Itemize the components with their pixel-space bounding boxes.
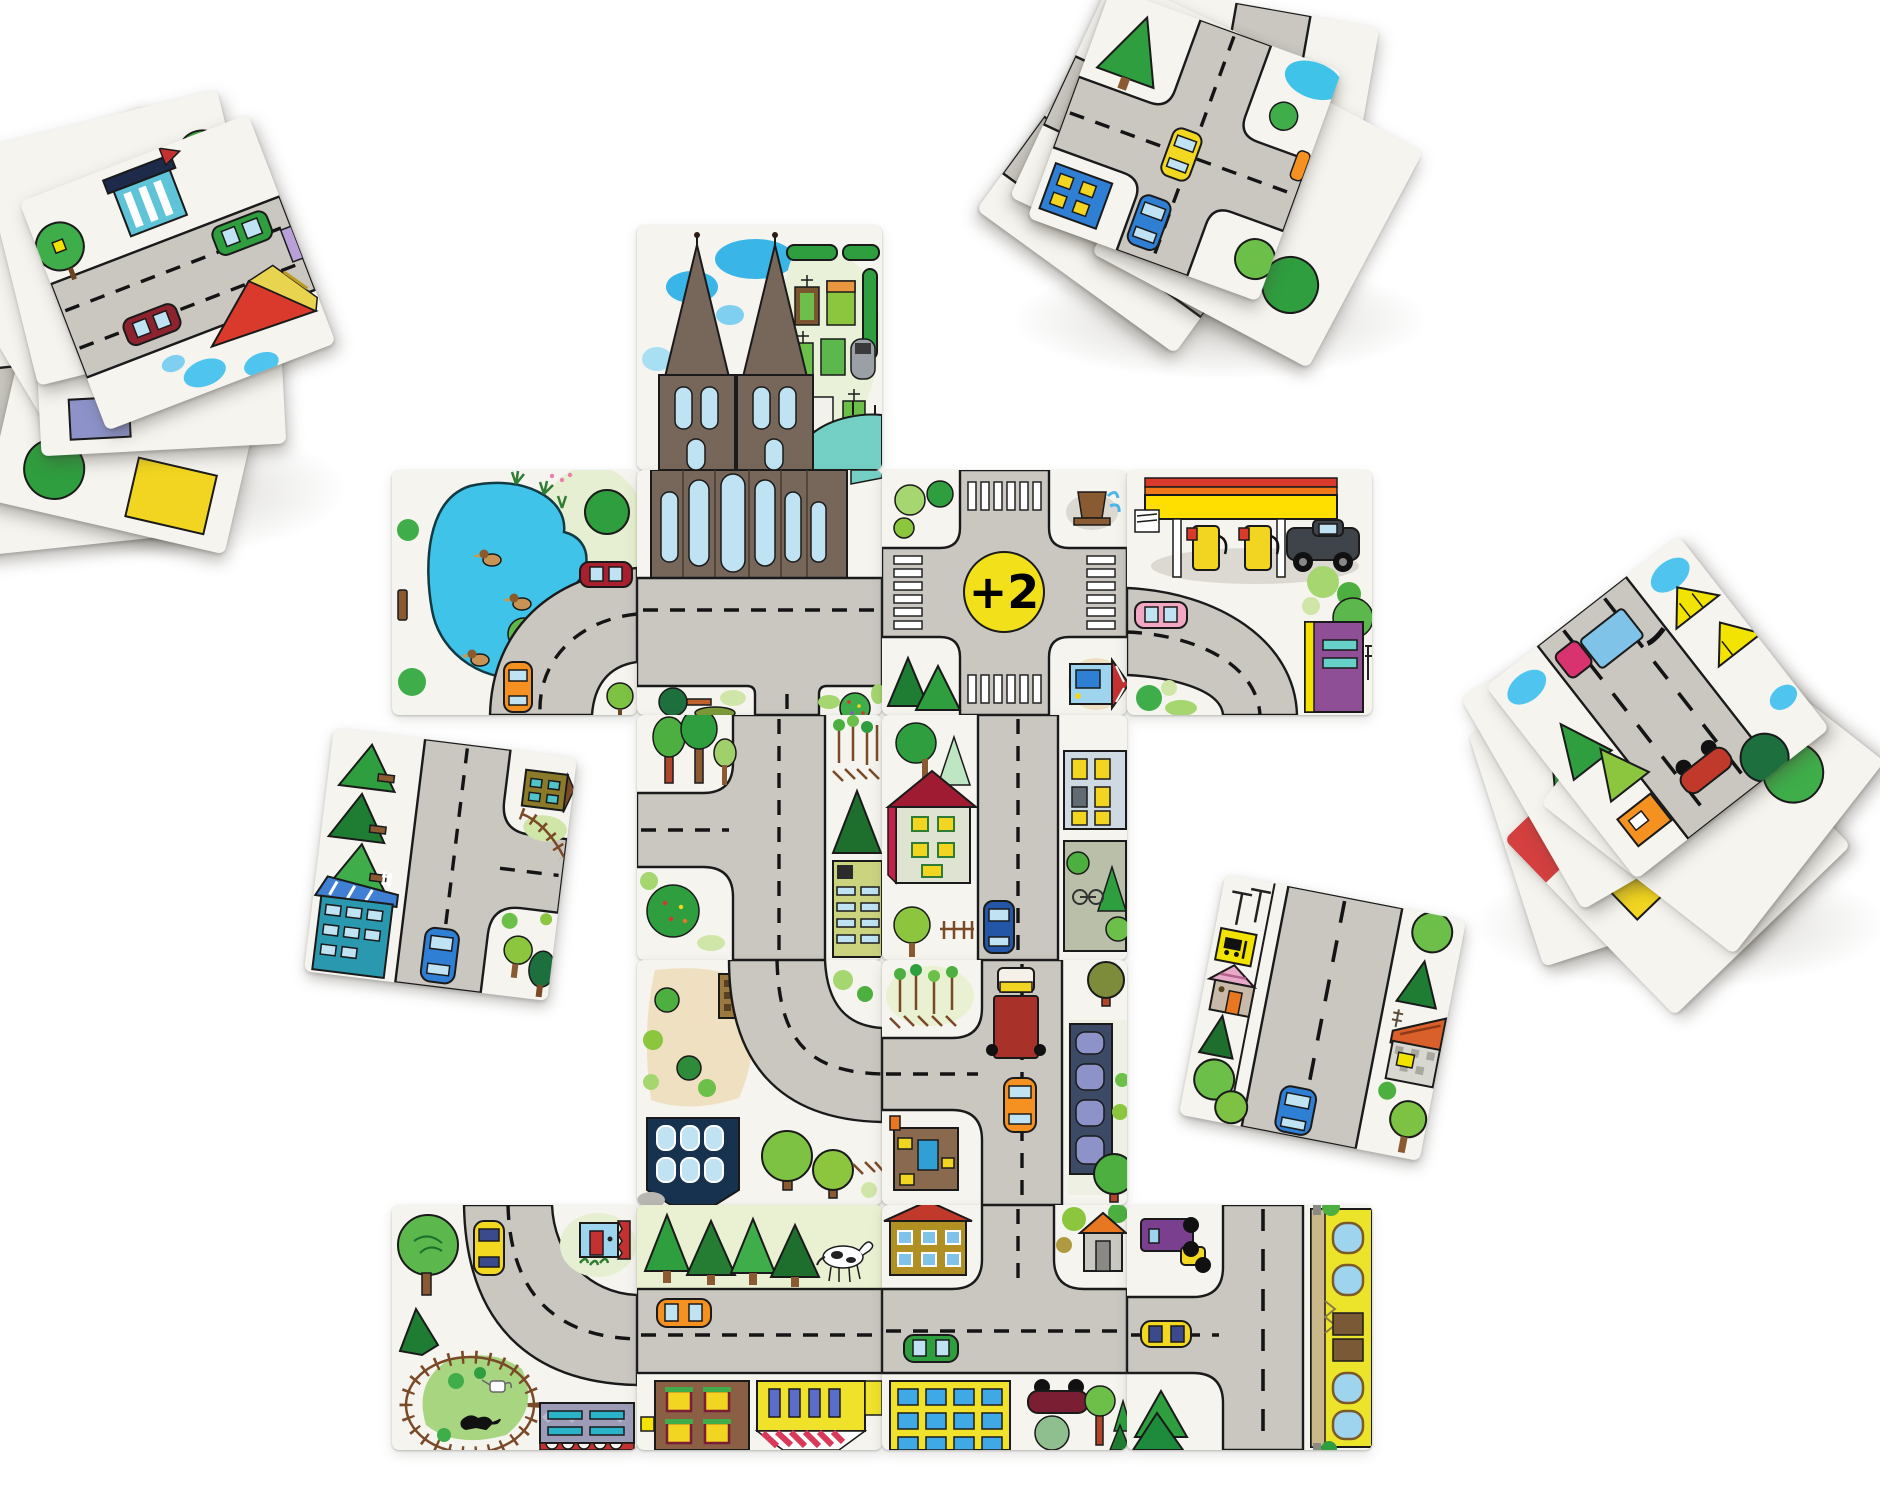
bus-stop-sign-icon xyxy=(1215,928,1256,966)
fir-tree-icons xyxy=(1133,1391,1187,1450)
railway-meadow xyxy=(406,1355,534,1450)
fir-tree-icons xyxy=(323,741,402,891)
bonus-token-label: +2 xyxy=(969,565,1040,619)
blue-car-icon xyxy=(984,901,1014,953)
bush-icon xyxy=(857,986,873,1002)
pink-roof-house-icon xyxy=(1204,961,1258,1017)
corner-tree-icon xyxy=(607,683,633,715)
fir-tree-icon xyxy=(1199,1013,1240,1059)
dark-red-car-icon xyxy=(580,562,632,587)
green-car-icon xyxy=(904,1335,958,1362)
corner-bushes-icon xyxy=(894,481,953,538)
ladder-icon xyxy=(381,871,393,887)
fir-tree-icons xyxy=(888,658,960,710)
dotted-bush-icon xyxy=(818,684,882,715)
purple-kiosk-icon xyxy=(1305,598,1372,712)
courtyard-wall-icon xyxy=(1064,841,1127,951)
blue-car-icon xyxy=(1274,1085,1318,1137)
navy-building-icon xyxy=(637,1118,739,1205)
orange-car-icon xyxy=(1004,1078,1036,1132)
tile-crossroads-bonus[interactable]: +2 xyxy=(882,470,1127,715)
brown-house-window-boxes-icon xyxy=(641,1381,749,1450)
corner-trees-icon xyxy=(493,908,562,999)
house-icon xyxy=(125,458,216,534)
tile-cathedral-spires[interactable] xyxy=(637,225,882,470)
dark-tree-icon xyxy=(585,490,629,534)
tile-cathedral-facade[interactable] xyxy=(637,470,882,715)
red-roof-house-icon xyxy=(888,771,976,883)
yellow-car-icon xyxy=(1141,1321,1191,1347)
red-scalloped-base xyxy=(540,1443,634,1450)
round-tree-icons xyxy=(762,1131,882,1198)
apartment-block-icon xyxy=(833,861,882,957)
fountain-icon xyxy=(1066,492,1119,530)
brown-house-blue-door-icon xyxy=(890,1116,958,1190)
blue-house-icon xyxy=(1039,163,1112,229)
bush-icon xyxy=(398,668,426,696)
yellow-rowhouse-icon xyxy=(1311,1209,1372,1447)
mustard-house-icon xyxy=(884,1205,972,1275)
tile-gas-station[interactable] xyxy=(1127,470,1372,715)
tile-avenue-horse[interactable] xyxy=(637,1205,882,1450)
patterned-building-icon xyxy=(540,1403,634,1450)
blue-house-red-roof-icon xyxy=(1068,658,1127,710)
tile-bend-rail-meadow[interactable] xyxy=(392,1205,637,1450)
power-pole-icon xyxy=(1391,1008,1404,1028)
cathedral-facade-icon xyxy=(651,470,882,578)
tile-t-junction-west[interactable] xyxy=(637,715,882,960)
bonus-token: +2 xyxy=(964,552,1044,632)
apartment-yellow-windows-icon xyxy=(1064,751,1126,829)
berry-bush-icon xyxy=(640,872,725,951)
yellow-car-icon xyxy=(474,1221,504,1275)
orange-car-icon xyxy=(504,662,532,712)
orange-taxi-icon xyxy=(657,1299,711,1327)
tree-icons xyxy=(398,1215,458,1355)
bench-icon xyxy=(398,590,407,620)
nave-roof-sliver xyxy=(851,470,882,484)
tile-junction-village[interactable] xyxy=(882,1205,1127,1450)
checker-house-icon xyxy=(1384,1009,1446,1087)
loose-tile-fir-lane[interactable] xyxy=(304,728,577,1001)
bush-icon xyxy=(397,519,419,541)
small-sign-icon xyxy=(641,1417,654,1431)
corner-trees-icon xyxy=(659,688,746,715)
tile-bend-north-east[interactable] xyxy=(637,960,882,1205)
tree-icons xyxy=(653,715,736,785)
sapling-fence-icon xyxy=(886,964,974,1028)
sapling-fence-icon xyxy=(833,715,879,781)
tile-t-junction-yellow-row[interactable] xyxy=(1127,1205,1372,1450)
fir-tree-icon xyxy=(833,791,881,853)
bush-icon xyxy=(833,970,853,990)
curved-road xyxy=(729,960,882,1122)
round-tree-icons-left xyxy=(1187,1056,1255,1126)
blue-car-icon xyxy=(420,927,460,985)
tile-duck-pond[interactable] xyxy=(392,470,637,715)
round-tree-icons-right xyxy=(1391,908,1456,1034)
tree-bottom-right xyxy=(1384,1098,1429,1156)
shed-orange-roof-icon xyxy=(1056,1205,1127,1271)
tree-and-fence-icon xyxy=(894,907,974,957)
photo-scene: +2 xyxy=(0,0,1880,1486)
kiosk-red-awning-icon xyxy=(560,1213,636,1277)
overturned-car-icon xyxy=(1028,1379,1088,1413)
tile-t-junction-west-2[interactable] xyxy=(882,960,1127,1205)
loose-tile-bus-stop-street[interactable] xyxy=(1179,874,1466,1161)
tile-street-red-roof[interactable] xyxy=(882,715,1127,960)
bush-icon xyxy=(1377,1080,1398,1101)
pink-car-icon xyxy=(1135,602,1187,628)
sign-posts-icon xyxy=(1226,886,1271,931)
bush-icon xyxy=(1266,98,1302,134)
yellow-shop-awning-icon xyxy=(757,1381,882,1450)
yellow-building-blue-windows-icon xyxy=(890,1381,1010,1450)
purple-truck-icon xyxy=(1141,1217,1211,1273)
